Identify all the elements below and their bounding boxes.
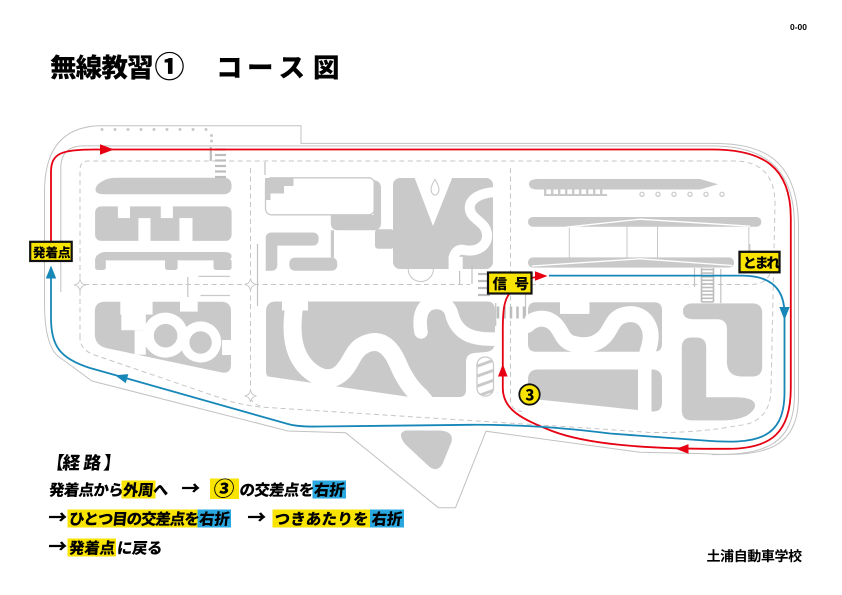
svg-text:0-00: 0-00 bbox=[790, 22, 807, 32]
